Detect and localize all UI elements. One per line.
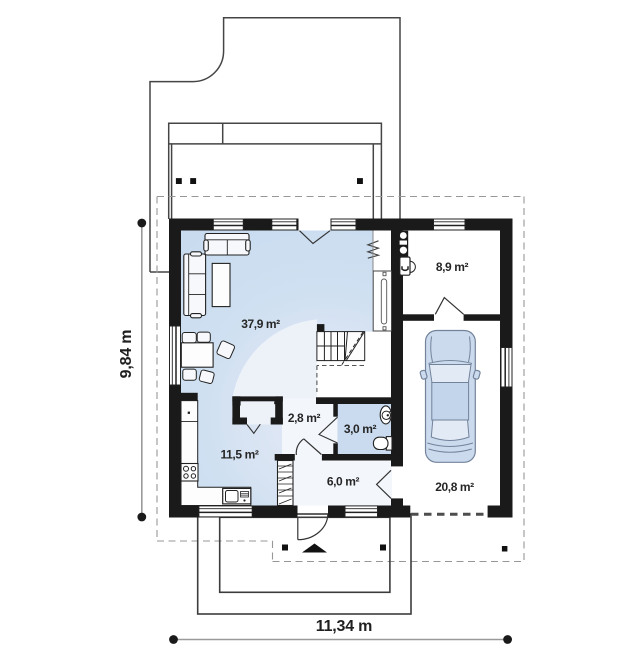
svg-text:37,9 m²: 37,9 m² (241, 317, 280, 331)
svg-text:2,8 m²: 2,8 m² (288, 411, 321, 425)
svg-text:8,9 m²: 8,9 m² (436, 260, 469, 274)
svg-text:6,0 m²: 6,0 m² (327, 475, 360, 489)
svg-text:20,8 m²: 20,8 m² (435, 480, 474, 494)
svg-text:3,0 m²: 3,0 m² (344, 422, 377, 436)
svg-text:11,5 m²: 11,5 m² (221, 448, 259, 462)
svg-text:11,34 m: 11,34 m (316, 618, 372, 635)
svg-text:9,84 m: 9,84 m (118, 330, 135, 379)
